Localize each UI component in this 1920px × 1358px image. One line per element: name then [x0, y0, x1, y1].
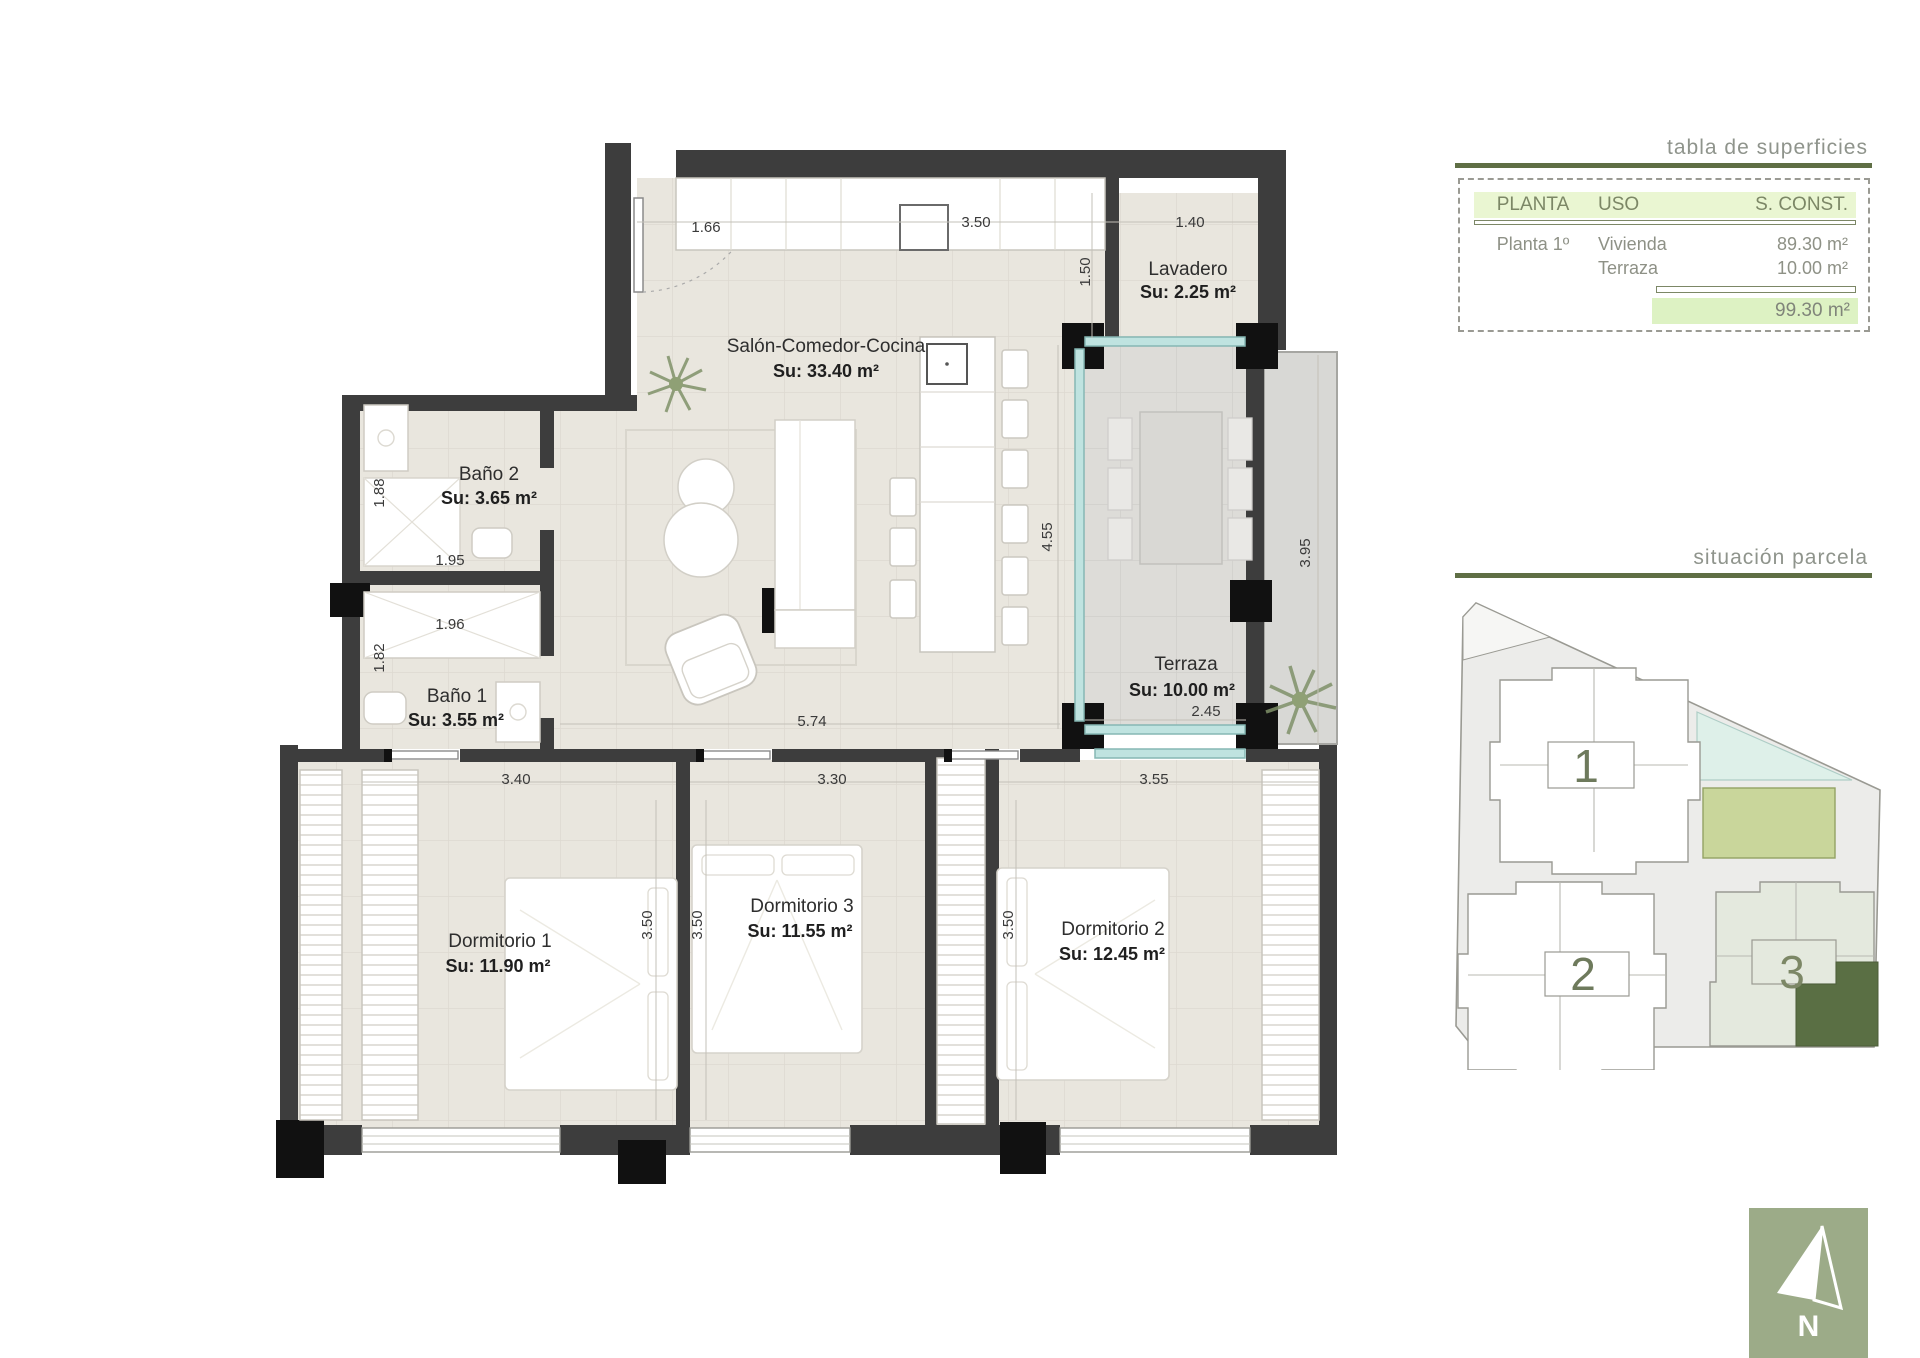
water-area: [1697, 712, 1852, 780]
col-sconst: S. CONST.: [1718, 194, 1856, 216]
row2-uso: Terraza: [1592, 258, 1718, 280]
row1-planta: Planta 1º: [1474, 234, 1592, 256]
site-building-2: 2: [1458, 882, 1666, 1070]
dim-bano1-w: 1.96: [435, 616, 464, 633]
dim-bano2-h: 1.88: [371, 478, 388, 507]
row1-uso: Vivienda: [1592, 234, 1718, 256]
dim-dorm1-w: 3.40: [501, 771, 530, 788]
surface-table-header: PLANTA USO S. CONST.: [1474, 192, 1856, 218]
label-dorm2: Dormitorio 2: [1061, 919, 1164, 940]
north-arrow-icon: [1749, 1208, 1868, 1318]
area-lavadero: Su: 2.25 m²: [1140, 282, 1236, 302]
site-plan: 1 2 3: [1440, 580, 1896, 1070]
compass-north-label: N: [1749, 1310, 1868, 1344]
row1-value: 89.30 m²: [1718, 234, 1856, 256]
area-dorm1: Su: 11.90 m²: [445, 956, 550, 976]
page: Salón-Comedor-Cocina Su: 33.40 m² Lavade…: [0, 0, 1920, 1358]
area-dorm2: Su: 12.45 m²: [1059, 944, 1165, 964]
dim-bano2-w: 1.95: [435, 552, 464, 569]
compass: N: [1749, 1208, 1868, 1358]
site-building-3: 3: [1710, 882, 1878, 1046]
bed-dorm3: [692, 845, 862, 1053]
col-planta: PLANTA: [1474, 194, 1592, 216]
dim-terraza-h: 4.55: [1039, 522, 1056, 551]
bed-dorm2: [997, 868, 1169, 1080]
area-salon: Su: 33.40 m²: [773, 361, 879, 381]
site-plan-title: situación parcela: [1448, 546, 1868, 570]
dim-salon-w: 5.74: [797, 713, 826, 730]
label-dorm3: Dormitorio 3: [750, 896, 853, 917]
windows: [362, 1128, 1250, 1152]
terraza-table: [1108, 412, 1252, 564]
label-lavadero: Lavadero: [1148, 259, 1227, 280]
area-terraza: Su: 10.00 m²: [1129, 680, 1235, 700]
area-bano2: Su: 3.65 m²: [441, 488, 537, 508]
dim-lavadero-w: 1.40: [1175, 214, 1204, 231]
dim-lavadero-h: 1.50: [1077, 257, 1094, 286]
pool: [1703, 788, 1835, 858]
kitchen-counter: [676, 178, 1105, 250]
dim-bano1-h: 1.82: [371, 643, 388, 672]
dim-dorm3-h: 3.50: [689, 910, 706, 939]
site-building-3-label: 3: [1779, 946, 1805, 998]
header-underline: [1474, 220, 1856, 225]
site-building-2-label: 2: [1570, 948, 1596, 1000]
site-building-1: 1: [1490, 668, 1700, 874]
label-terraza: Terraza: [1154, 654, 1218, 675]
col-uso: USO: [1592, 194, 1718, 216]
surface-table-title: tabla de superficies: [1448, 136, 1868, 160]
label-bano1: Baño 1: [427, 686, 487, 707]
site-plan-rule: [1455, 573, 1872, 578]
dim-dorm2-h: 3.50: [1000, 910, 1017, 939]
total-value: 99.30 m²: [1652, 298, 1858, 324]
dim-kitchen: 3.50: [961, 214, 990, 231]
table-row: Terraza 10.00 m²: [1474, 258, 1856, 280]
label-dorm1: Dormitorio 1: [448, 931, 551, 952]
surface-table: PLANTA USO S. CONST. Planta 1º Vivienda …: [1458, 178, 1870, 332]
row2-planta: [1474, 258, 1592, 280]
total-separator: [1656, 286, 1856, 293]
bed-dorm1: [505, 878, 677, 1090]
area-bano1: Su: 3.55 m²: [408, 710, 504, 730]
dim-dorm3-w: 3.30: [817, 771, 846, 788]
dim-dorm1-h: 3.50: [639, 910, 656, 939]
floor-plan: Salón-Comedor-Cocina Su: 33.40 m² Lavade…: [270, 130, 1360, 1200]
site-building-1-label: 1: [1573, 740, 1599, 792]
dim-terraza-out: 3.95: [1297, 538, 1314, 567]
area-dorm3: Su: 11.55 m²: [747, 921, 852, 941]
dim-dorm2-w: 3.55: [1139, 771, 1168, 788]
row2-value: 10.00 m²: [1718, 258, 1856, 280]
dim-terraza-w: 2.45: [1191, 703, 1220, 720]
table-row: Planta 1º Vivienda 89.30 m²: [1474, 234, 1856, 256]
label-salon: Salón-Comedor-Cocina: [727, 336, 926, 357]
label-bano2: Baño 2: [459, 464, 519, 485]
dim-entry: 1.66: [691, 219, 720, 236]
surface-table-rule: [1455, 163, 1872, 168]
